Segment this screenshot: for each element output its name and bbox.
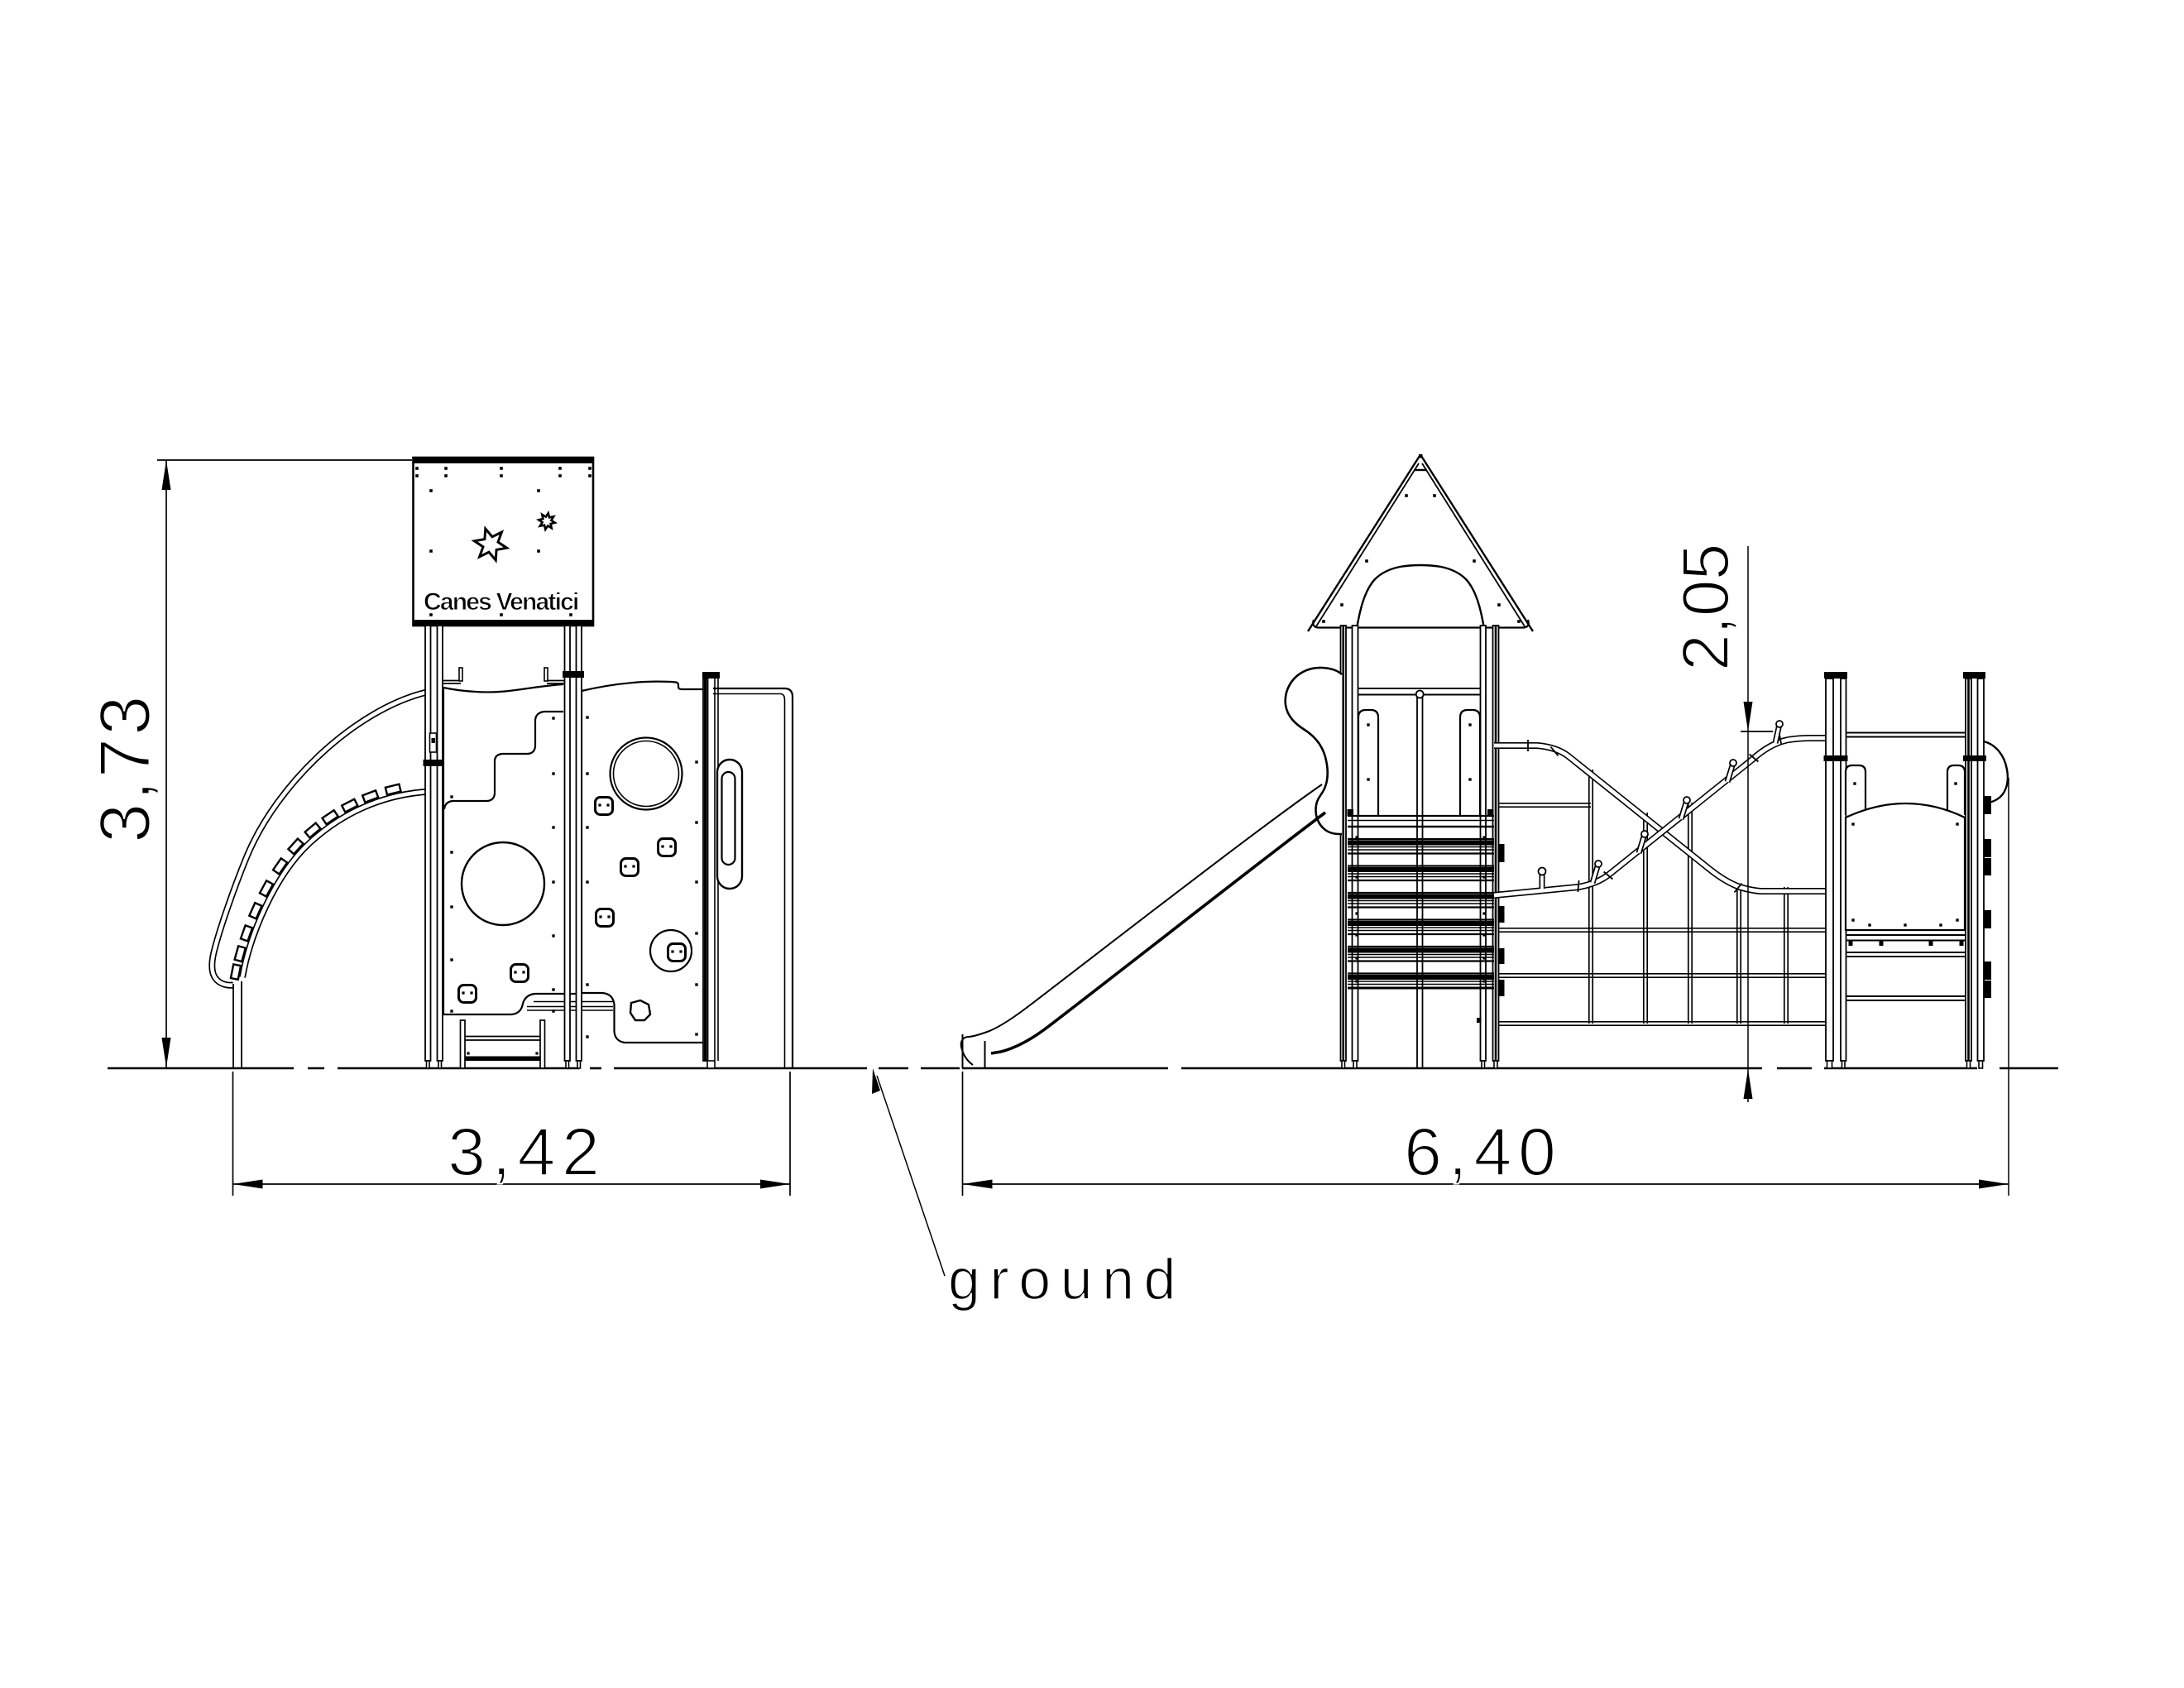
svg-text:ground: ground: [948, 1247, 1185, 1312]
svg-text:2,05: 2,05: [1669, 544, 1742, 671]
svg-text:6,40: 6,40: [1404, 1115, 1563, 1190]
svg-text:3,42: 3,42: [448, 1115, 606, 1190]
svg-text:Canes Venatici: Canes Venatici: [424, 588, 578, 616]
svg-text:3,73: 3,73: [86, 693, 165, 842]
